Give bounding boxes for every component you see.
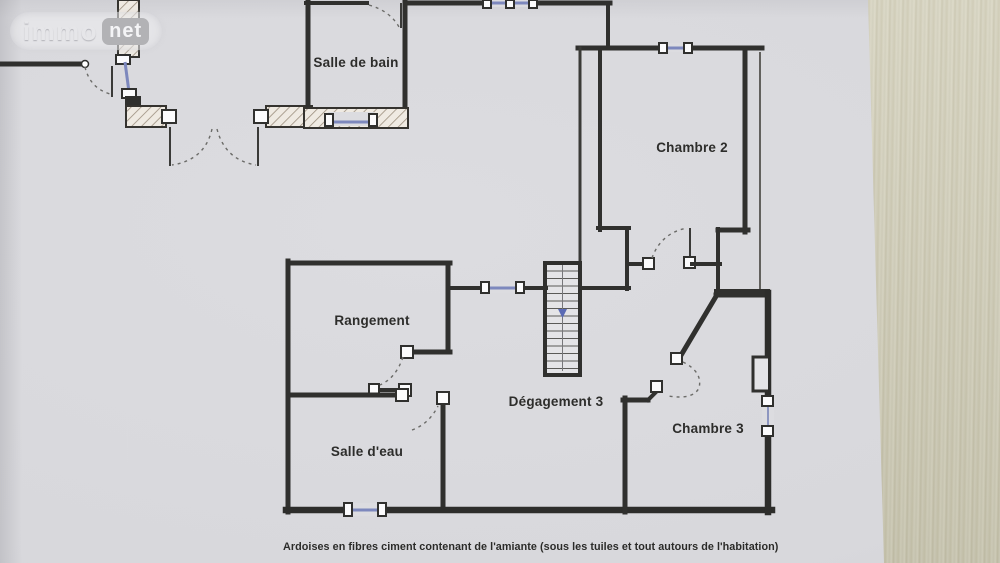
watermark-brand-immo: immo: [23, 18, 98, 44]
floor-plan-drawing: [0, 0, 1000, 563]
chimney-duct: [753, 357, 768, 391]
staircase: [545, 263, 580, 375]
door-arc: [412, 406, 438, 430]
watermark-brand-net: net: [102, 18, 149, 45]
photographed-floor-plan: Salle de bain Chambre 2 Rangement Dégage…: [0, 0, 1000, 563]
door-arc: [85, 67, 110, 94]
room-chambre-2-walls: [578, 43, 762, 290]
window-symbol: [344, 503, 386, 516]
plan-paper-sheet: Salle de bain Chambre 2 Rangement Dégage…: [0, 0, 1000, 563]
room-label-chambre-3: Chambre 3: [672, 421, 744, 436]
door-arc: [652, 228, 687, 258]
angled-wall: [680, 293, 718, 357]
window-symbol: [116, 55, 136, 98]
door-arc: [380, 357, 403, 385]
window-symbol: [762, 396, 774, 436]
door-arc: [217, 129, 256, 165]
window-symbol: [325, 112, 377, 126]
door-hinge-dot: [82, 61, 89, 68]
corridor-walls: [288, 263, 546, 293]
door-arc: [172, 129, 212, 165]
room-chambre-3-walls: [623, 293, 774, 512]
door-post: [671, 353, 682, 364]
room-rangement-walls: [288, 261, 450, 512]
bottom-exterior-wall: [286, 503, 772, 516]
room-label-rangement: Rangement: [334, 313, 409, 328]
door-post: [254, 110, 268, 123]
door-post: [396, 389, 408, 401]
door-post: [162, 110, 176, 123]
door-arc: [369, 5, 399, 27]
door-arc: [668, 362, 700, 397]
door-post: [437, 392, 449, 404]
caption-asbestos-note: Ardoises en fibres ciment contenant de l…: [283, 541, 778, 553]
door-post: [651, 381, 662, 392]
window-symbol: [483, 0, 537, 8]
window-symbol: [481, 282, 524, 293]
room-label-salle-de-bain: Salle de bain: [313, 55, 398, 70]
window-symbol: [659, 43, 692, 53]
door-post: [401, 346, 413, 358]
room-label-chambre-2: Chambre 2: [656, 140, 728, 155]
room-label-degagement-3: Dégagement 3: [509, 394, 604, 409]
door-post: [643, 258, 654, 269]
room-label-salle-d-eau: Salle d'eau: [331, 444, 403, 459]
top-exterior-wall: [405, 0, 610, 48]
chambre-2-door-corridor: [583, 228, 768, 293]
watermark-immonet-logo: immo net: [10, 12, 162, 50]
hatched-wall-double-door: [126, 106, 312, 166]
